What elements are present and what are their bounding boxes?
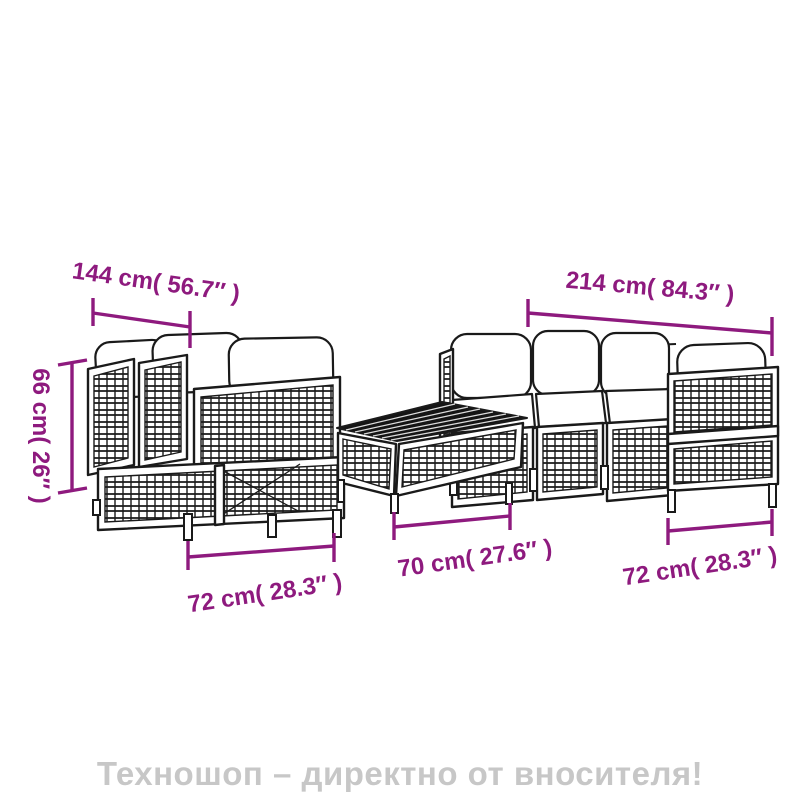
left-sofa-illustration	[88, 332, 344, 540]
leg	[184, 514, 192, 540]
leg	[391, 494, 398, 513]
leg	[338, 480, 344, 502]
line-art-canvas	[0, 0, 800, 800]
dimension-line-table-width	[394, 503, 510, 540]
dimension-label-height: 66 cm( 26″ )	[26, 368, 54, 504]
furniture-dimension-diagram: 144 cm( 56.7″ ) 214 cm( 84.3″ ) 66 cm( 2…	[0, 0, 800, 800]
pillow	[533, 331, 599, 395]
leg	[93, 500, 100, 515]
leg	[506, 483, 512, 504]
seat-cushion	[536, 391, 606, 427]
dimension-line-depth-left	[188, 533, 334, 570]
right-sofa-armrest-panel	[668, 367, 778, 491]
dimension-line-height	[58, 360, 87, 493]
leg	[601, 466, 608, 489]
skirt-post	[215, 465, 224, 525]
leg	[769, 484, 776, 507]
dimension-line-depth-right	[668, 509, 772, 545]
leg	[530, 469, 537, 491]
pillow	[601, 333, 669, 397]
leg	[668, 490, 675, 512]
leg	[333, 510, 341, 537]
pillow	[451, 334, 531, 398]
watermark-text: Техношоп – директно от вносителя!	[97, 755, 703, 793]
leg	[268, 515, 276, 537]
left-sofa-base-skirt	[98, 457, 344, 530]
